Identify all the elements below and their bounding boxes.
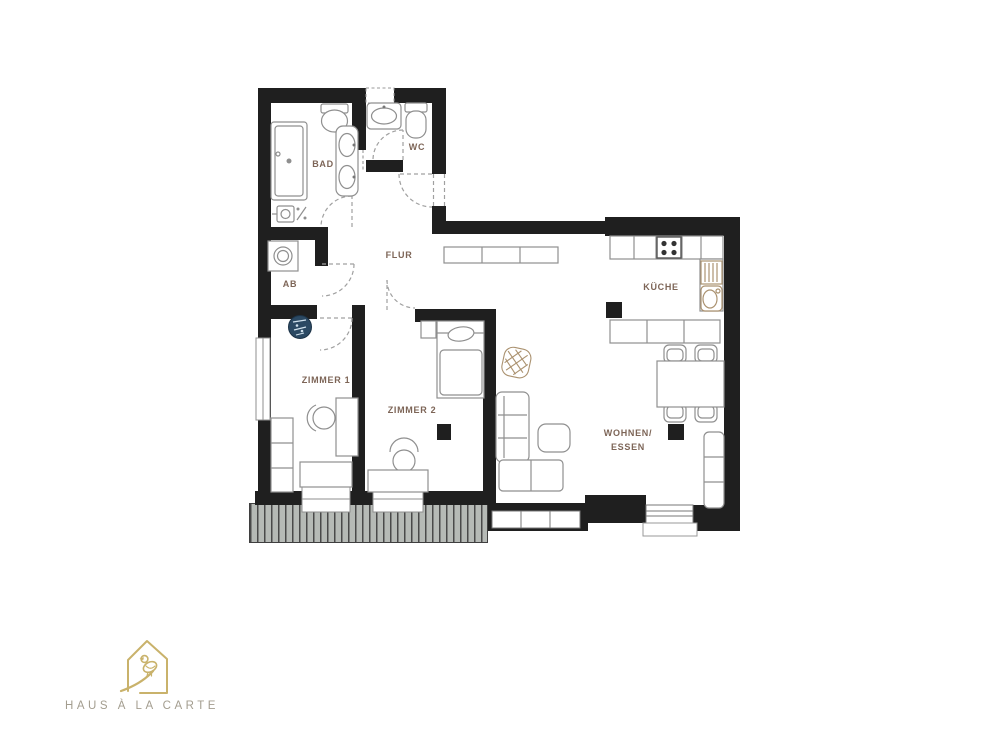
room-label-flur: FLUR <box>386 250 413 260</box>
side-table <box>538 424 570 452</box>
dining-chair <box>695 345 717 363</box>
room-label-kueche: KÜCHE <box>643 282 679 292</box>
room-label-ab: AB <box>283 279 297 289</box>
logo-wordmark: HAUS À LA CARTE <box>65 700 219 712</box>
sideboard-z1 <box>300 462 352 487</box>
wc-fixtures <box>367 103 427 138</box>
washing-machine <box>268 241 298 271</box>
wc-window <box>366 88 394 103</box>
dining-set <box>657 345 724 422</box>
ab-fixtures <box>268 241 298 271</box>
wardrobe-z1 <box>271 418 293 492</box>
sofa-chaise <box>499 460 563 491</box>
desk-z2 <box>368 470 428 492</box>
room-label-wohnen-essen: WOHNEN/ ESSEN <box>604 426 652 454</box>
dining-window <box>646 505 693 523</box>
living-bottom-window <box>492 511 580 528</box>
sofa-right <box>704 432 724 508</box>
zimmer1-furniture <box>271 398 358 492</box>
plant-basket-icon <box>500 346 532 380</box>
washer-valve <box>272 206 307 222</box>
zimmer2-door <box>387 280 415 310</box>
logo-house-bird-icon <box>121 641 167 693</box>
compass-stamp-icon <box>289 316 312 339</box>
ab-door <box>322 264 354 296</box>
entrance-opening <box>432 174 446 206</box>
dining-table <box>657 361 724 407</box>
desk-chair-z2 <box>390 438 418 472</box>
room-label-zimmer1: ZIMMER 1 <box>302 375 351 385</box>
dish-drainer <box>701 261 722 284</box>
dining-chair <box>664 345 686 363</box>
stove <box>657 237 681 258</box>
desk-z1 <box>336 398 358 456</box>
kitchen-sink <box>701 286 722 311</box>
wc-sink <box>367 103 401 129</box>
room-label-wohnen-line1: WOHNEN/ <box>604 426 652 440</box>
floorplan-page: BAD WC FLUR AB ZIMMER 1 ZIMMER 2 KÜCHE W… <box>0 0 1000 748</box>
room-label-wohnen-line2: ESSEN <box>604 440 652 454</box>
kitchen-island <box>610 320 720 343</box>
room-label-bad: BAD <box>312 159 334 169</box>
zimmer1-door <box>320 318 352 350</box>
bed <box>421 321 484 398</box>
flur-wardrobe <box>444 247 558 263</box>
logo-branch <box>121 671 153 691</box>
floorplan-graphic <box>0 0 1000 748</box>
room-label-wc: WC <box>409 142 425 152</box>
desk-chair-z1 <box>307 405 335 431</box>
room-label-zimmer2: ZIMMER 2 <box>388 405 437 415</box>
entrance-door <box>399 174 432 207</box>
bad-door <box>321 196 352 227</box>
dining-window-sill <box>643 523 697 536</box>
wc-toilet <box>405 103 427 138</box>
zimmer1-balcony-window <box>302 486 350 512</box>
double-sink <box>336 126 358 196</box>
zimmer1-left-window <box>256 338 270 420</box>
shower <box>271 122 307 200</box>
wc-door <box>373 130 403 160</box>
sofa <box>496 392 529 462</box>
